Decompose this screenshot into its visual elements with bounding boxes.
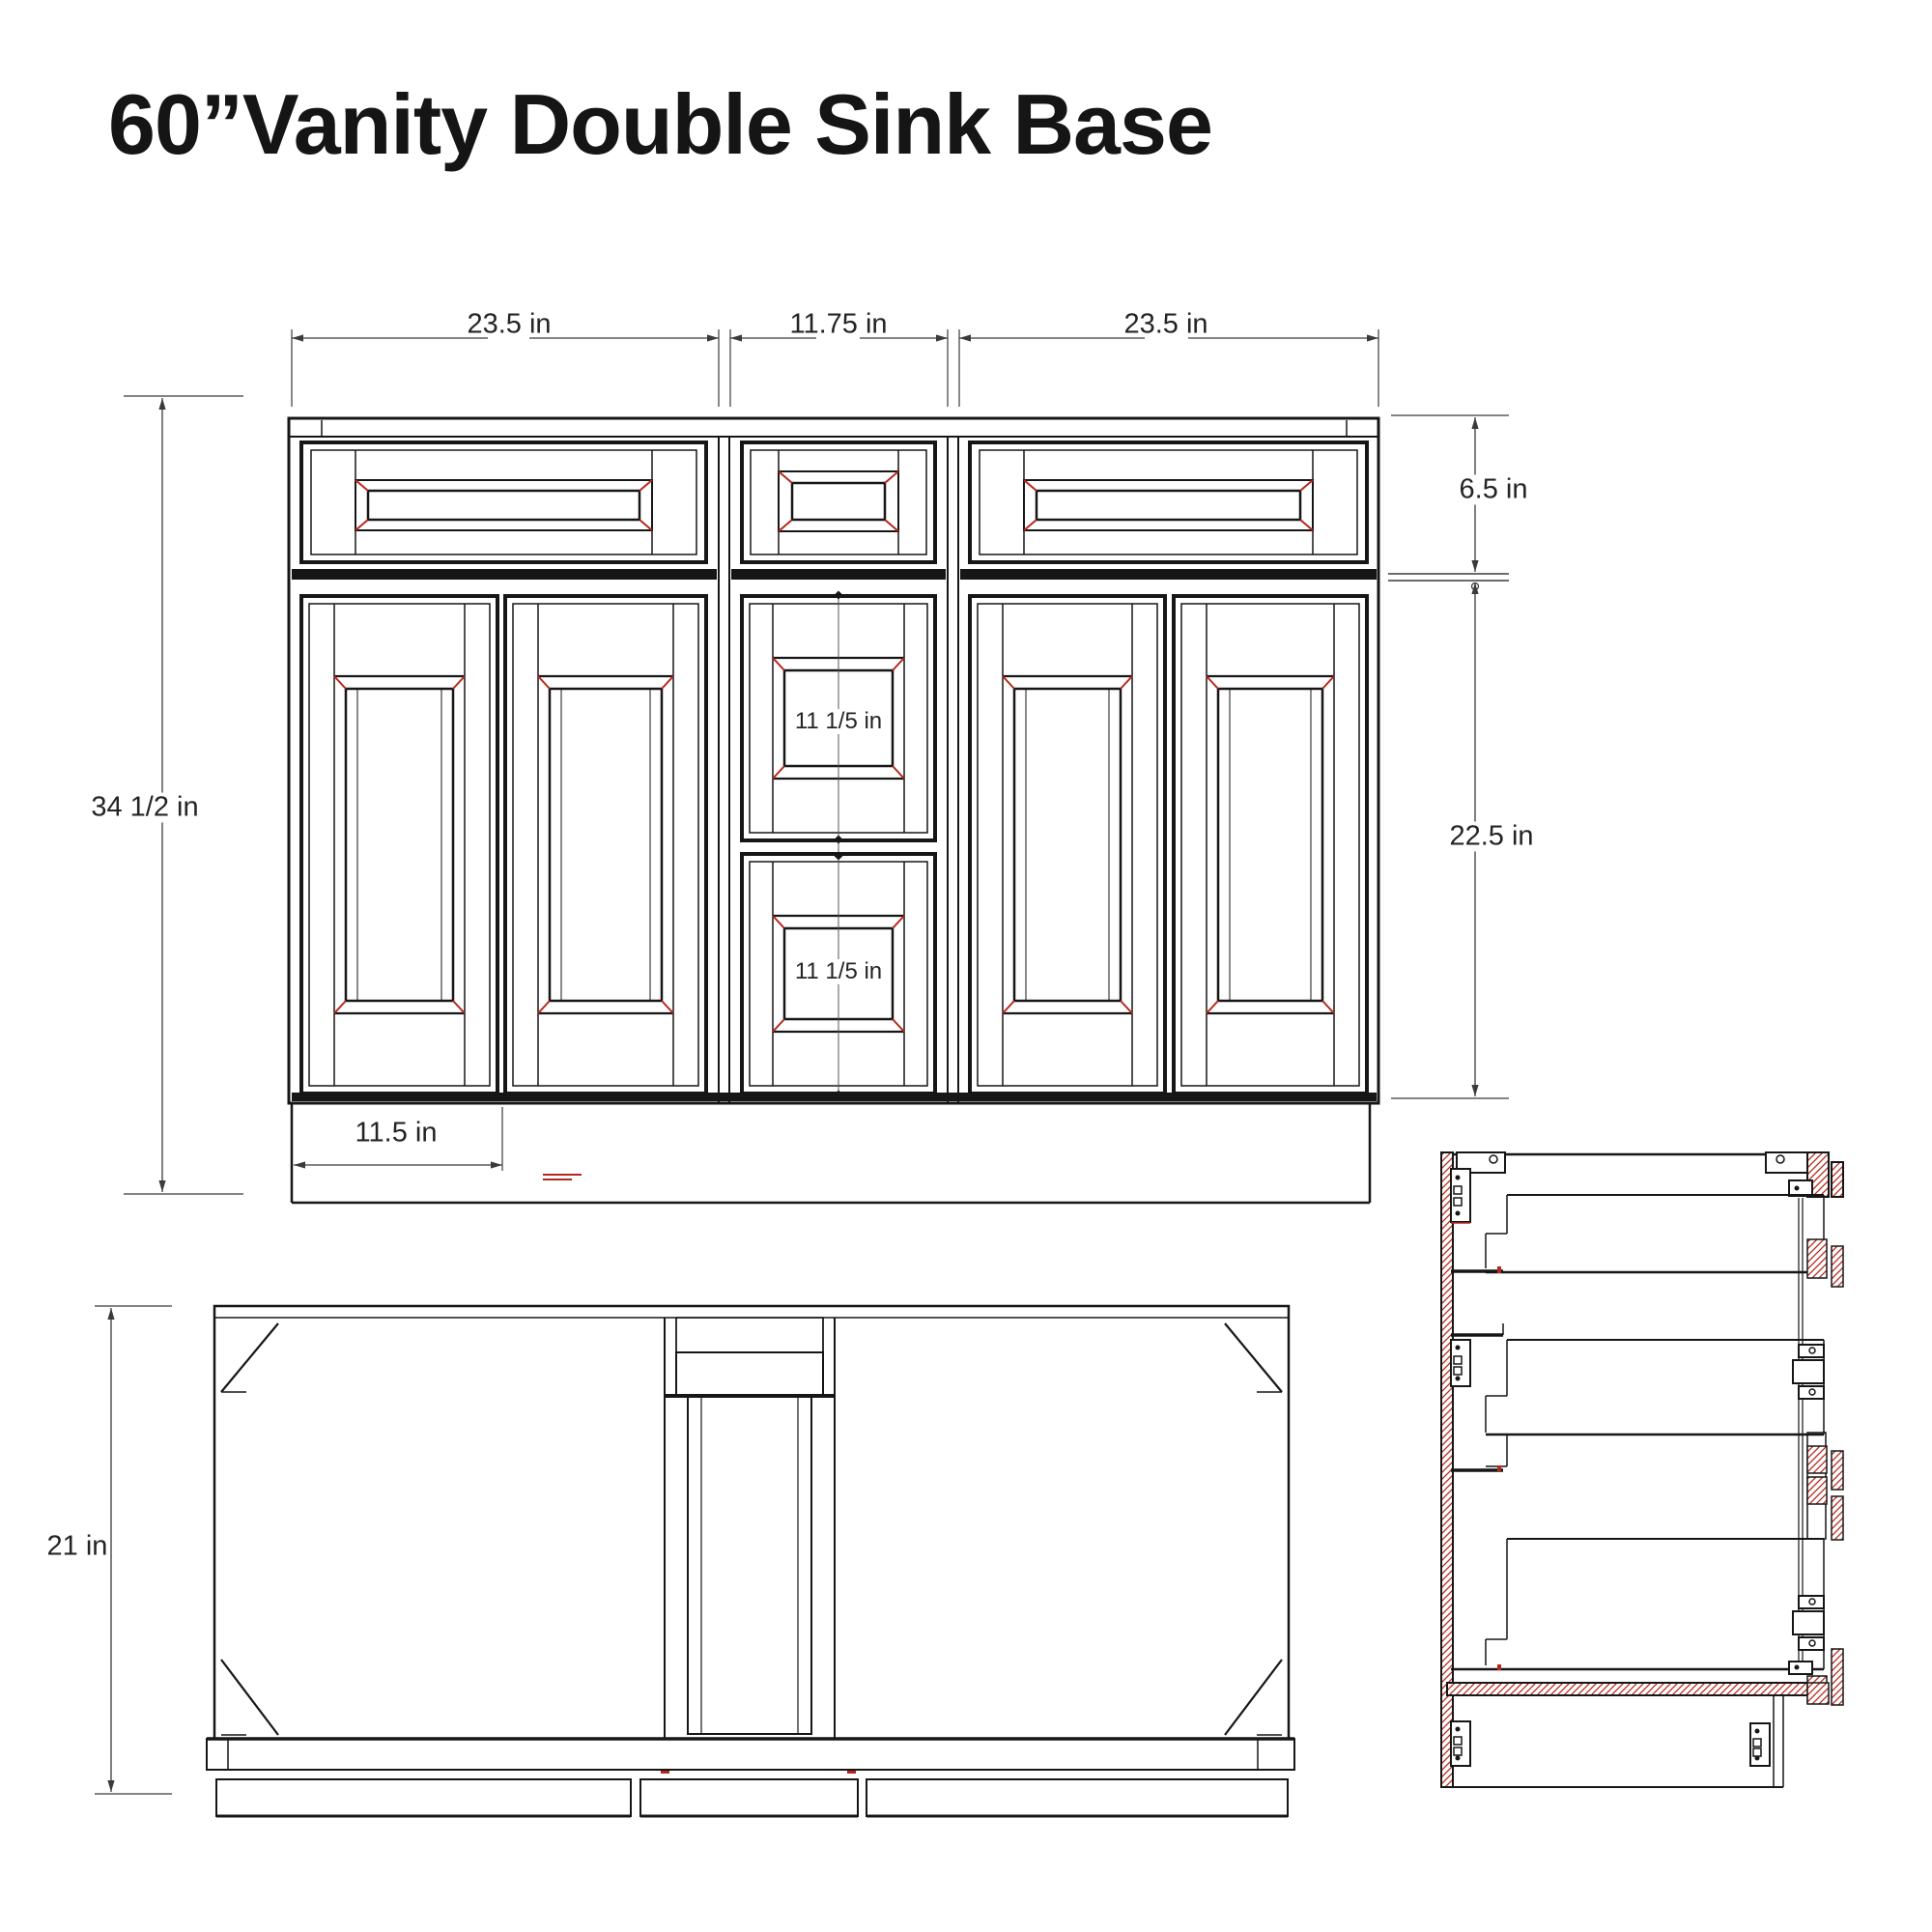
dim-label-width-right: 23.5 in: [1123, 311, 1207, 339]
dim-label-height-total: 34 1/2 in: [86, 793, 203, 823]
door-left: [505, 596, 706, 1094]
front-elevation-view: [289, 418, 1378, 1203]
label-middle-drawer-bottom: 11 1/5 in: [790, 959, 887, 984]
dim-label-door-height: 22.5 in: [1444, 822, 1538, 852]
plan-top-view: [207, 1306, 1294, 1816]
dim-label-drawer-height: 6.5 in: [1455, 475, 1533, 505]
vanity-technical-drawing: [0, 0, 1932, 1932]
dim-label-width-left: 23.5 in: [467, 311, 551, 339]
door-far-left: [301, 596, 497, 1094]
drawer-front-top-right: [970, 442, 1367, 562]
dim-label-width-center: 11.75 in: [789, 311, 887, 339]
page-title: 60”Vanity Double Sink Base: [108, 75, 1212, 174]
door-right: [970, 596, 1165, 1094]
dim-label-toekick-width: 11.5 in: [355, 1120, 438, 1148]
blueprint-canvas: 60”Vanity Double Sink Base 23.5 in 11.75…: [0, 0, 1932, 1932]
drawer-front-top-center: [742, 442, 935, 562]
side-section-view: [1441, 1152, 1843, 1787]
drawer-front-top-left: [301, 442, 706, 562]
dimension-lines: [95, 329, 1509, 1794]
dim-label-plan-depth: 21 in: [47, 1533, 108, 1561]
label-middle-drawer-top: 11 1/5 in: [790, 709, 887, 734]
door-far-right: [1174, 596, 1367, 1094]
